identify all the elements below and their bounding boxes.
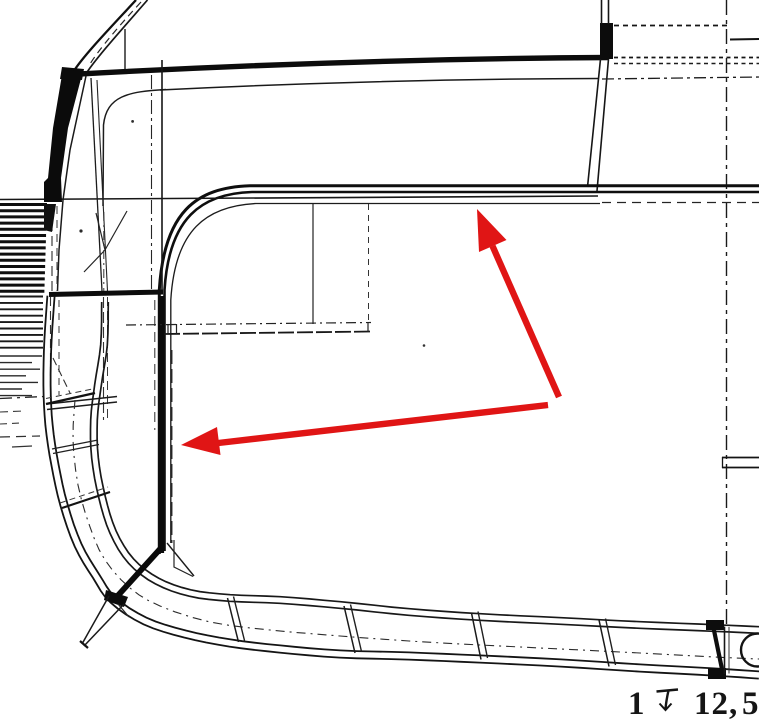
svg-text:5: 5 — [742, 686, 759, 719]
svg-text:12,: 12, — [694, 686, 738, 719]
svg-text:1: 1 — [628, 686, 645, 719]
